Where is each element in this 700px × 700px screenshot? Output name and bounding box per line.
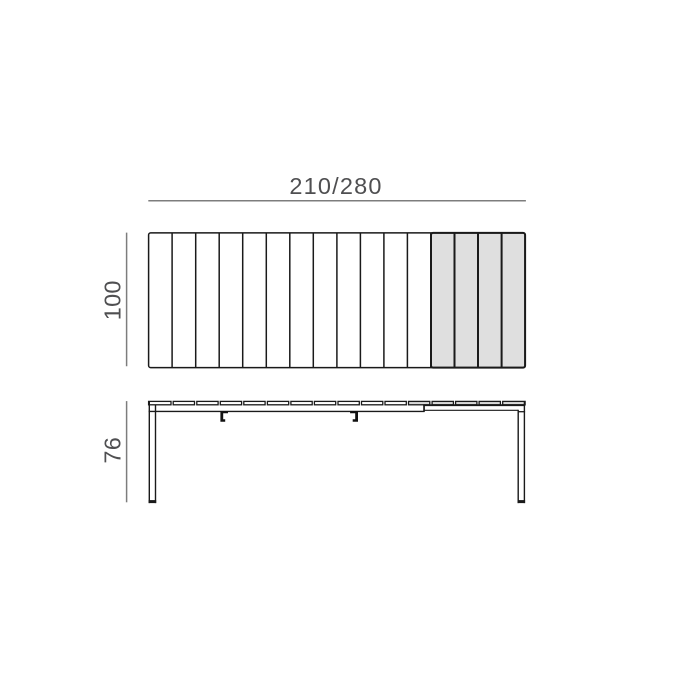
svg-text:76: 76 [99,437,125,464]
svg-text:100: 100 [99,280,125,320]
svg-text:210/280: 210/280 [289,173,382,199]
